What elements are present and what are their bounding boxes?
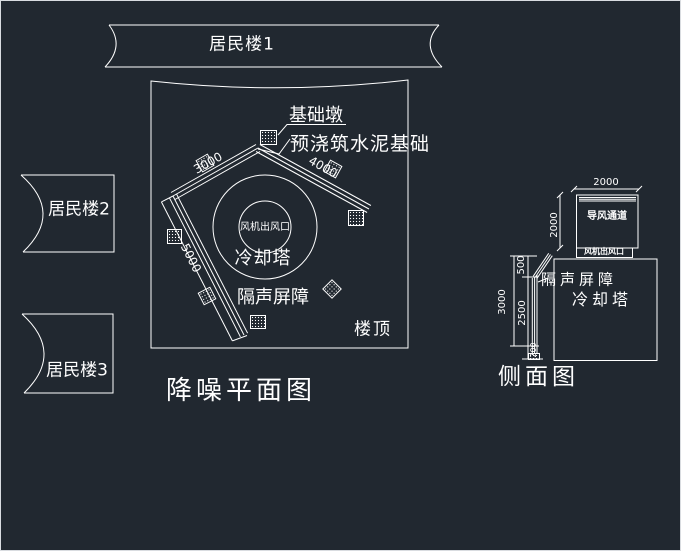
side-title: 侧面图 — [498, 366, 579, 389]
side-duct-label: 导风通道 — [587, 212, 627, 222]
plan-foundation-label: 预浇筑水泥基础 — [290, 135, 430, 154]
side-barrier-label: 隔声屏障 — [541, 273, 617, 288]
pier-block-top — [260, 130, 277, 145]
side-fan-outlet-label: 风机出风口 — [584, 248, 624, 256]
pier-block-left — [167, 229, 182, 244]
side-cooling-tower-label: 冷却塔 — [572, 292, 632, 308]
plan-barrier-label: 隔声屏障 — [237, 289, 309, 307]
side-dim-barrier-mid: 2500 — [518, 300, 528, 325]
side-dim-barrier-top: 500 — [517, 255, 527, 274]
building-3-outline — [22, 314, 113, 393]
plan-fan-outlet-label: 风机出风口 — [240, 223, 290, 233]
drawing-canvas[interactable]: 居民楼1 居民楼2 居民楼3 基础墩 预浇筑水泥基础 风机出风口 冷却塔 隔声屏… — [0, 0, 681, 551]
plan-cooling-tower-label: 冷却塔 — [235, 250, 292, 268]
side-dim-duct-width: 2000 — [593, 178, 618, 188]
pier-block-right — [348, 210, 364, 226]
building-1-label: 居民楼1 — [209, 37, 275, 54]
pier-block-bottom — [250, 315, 266, 329]
side-dim-total-height: 3000 — [498, 289, 508, 314]
side-pier-block — [528, 353, 540, 360]
plan-roof-label: 楼顶 — [354, 322, 392, 339]
plan-pier-label: 基础墩 — [289, 107, 343, 125]
plan-title: 降噪平面图 — [166, 378, 316, 404]
building-3-label: 居民楼3 — [46, 363, 108, 380]
side-dim-duct-height: 2000 — [550, 212, 560, 237]
building-2-label: 居民楼2 — [48, 202, 110, 219]
